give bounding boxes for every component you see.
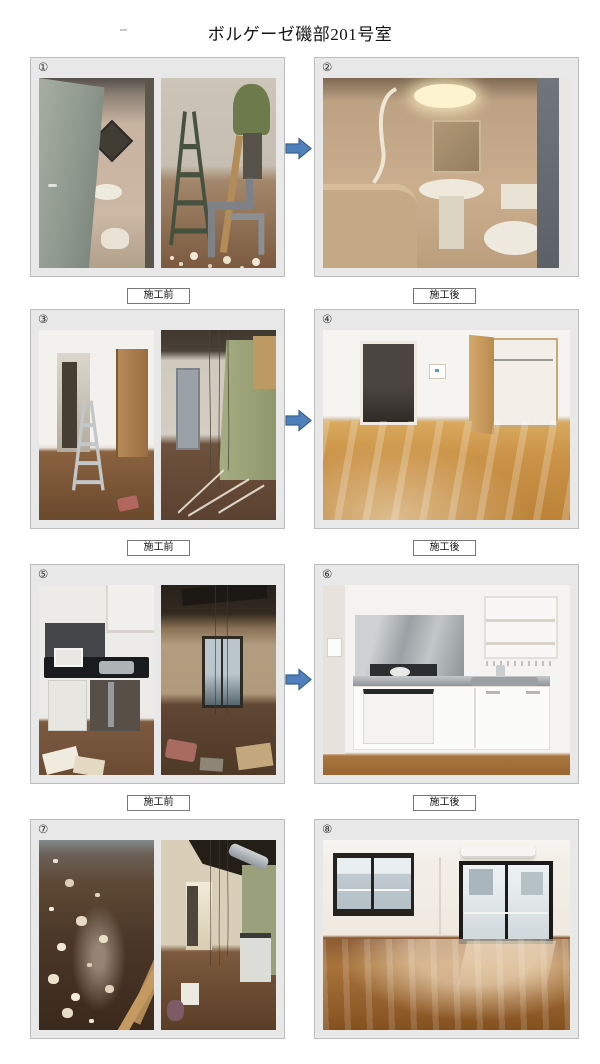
floor-gloss-overlay [323,421,570,520]
sink-shape [92,184,122,199]
after-panel-2: ② [314,57,579,277]
old-kitchen-unit-shape [240,933,271,982]
white-box-shape [181,983,199,1006]
photo-renovated-unit-bathroom [323,78,570,268]
photo-renovated-western-room [323,330,570,520]
tan-debris-shape [235,742,272,769]
panel-number-8: ⑧ [322,824,332,836]
wall-strip-shape [559,78,570,268]
photo-debris-covered-floor [39,840,154,1030]
air-conditioner-shape [461,845,535,858]
open-cabinet-shape [90,680,141,731]
photo-pair [39,330,276,520]
open-door-shape [39,78,105,268]
before-caption-2: 施工前 [127,540,190,556]
balcony-rail-shape [464,912,548,914]
shelf-board-shape [486,642,555,645]
plywood-patch-shape [253,336,276,389]
corridor-door-shape [187,886,197,947]
plaster-debris-specks [53,859,58,863]
photo-bathroom-doorway-before [39,78,154,268]
cabinet-handle-shape [486,691,500,694]
basket-shape [54,648,83,667]
report-page: ボルゲーゼ磯部201号室 ① [0,0,600,1064]
bathtub-shape [323,184,417,268]
floor-reflection-shape [455,941,556,998]
photo-wall-demolition [161,330,276,520]
stainless-sink-shape [99,661,135,674]
photo-single [323,78,570,268]
building-silhouette-shape [469,869,494,896]
toilet-shape [101,228,129,249]
debris-bag-shape [167,1000,184,1021]
photo-pair [39,78,276,268]
mini-fridge-shape [363,689,435,744]
before-panel-3: ③ [30,309,285,529]
debris-shape [72,756,104,775]
balcony-door-mullion-shape [505,865,508,939]
side-wall-shape [323,585,345,754]
right-arrow-icon [285,137,312,160]
door-frame-shape [537,78,559,268]
basin-pedestal-shape [439,196,464,249]
mirror-shape [432,120,481,173]
burner-shape [390,667,410,677]
photo-single [323,840,570,1030]
closet-interior-shape [486,338,558,427]
mini-fridge-shape [48,680,87,731]
right-arrow-icon [285,409,312,432]
before-panel-5: ⑤ [30,564,285,784]
panel-number-7: ⑦ [38,824,48,836]
debris-specks [170,256,174,260]
panel-number-4: ④ [322,314,332,326]
panel-number-3: ③ [38,314,48,326]
after-panel-4: ④ [314,309,579,529]
photo-single [323,585,570,775]
door-frame-shape [145,78,154,268]
after-caption-2: 施工後 [413,540,476,556]
drain-pipe-shape [108,682,114,728]
hanging-wires-shape [205,585,240,714]
photo-plumbing-demolition [161,78,276,268]
chalk-lines-shape [168,455,269,516]
after-panel-8: ⑧ [314,819,579,1039]
cabinet-handle-shape [526,691,540,694]
closet-door-shape [116,349,148,457]
worker-jacket-shape [233,84,270,135]
ceiling-light-shape [414,84,476,109]
photo-gutted-room [161,585,276,775]
photo-pair [39,585,276,775]
after-caption-3: 施工後 [413,795,476,811]
folding-door-shape [469,334,494,433]
stray-mark [120,29,127,31]
page-title: ボルゲーゼ磯部201号室 [0,20,600,45]
right-arrow-icon [285,668,312,691]
photo-single [323,330,570,520]
photo-corridor-demolition [161,840,276,1030]
pink-debris-shape [164,738,197,762]
shelf-board-shape [486,619,555,622]
stepladder-shape [67,398,111,493]
photo-hallway-with-stepladder [39,330,154,520]
closet-rod-shape [493,359,552,361]
red-cloth-shape [117,495,139,512]
pipes-shape [202,165,273,260]
hanging-wires-shape [202,840,237,965]
shower-hose-shape [348,86,412,189]
after-panel-6: ⑥ [314,564,579,784]
toilet-tank-shape [501,184,541,209]
panel-number-5: ⑤ [38,569,48,581]
entrance-hallway-shape [360,341,417,425]
cabinet-seam-shape [474,688,476,749]
before-panel-1: ① [30,57,285,277]
before-panel-7: ⑦ [30,819,285,1039]
photo-renovated-compact-kitchen [323,585,570,775]
panel-number-2: ② [322,62,332,74]
photo-renovated-living-room [323,840,570,1030]
panel-number-6: ⑥ [322,569,332,581]
after-caption-1: 施工後 [413,288,476,304]
building-silhouette-shape [521,872,543,895]
intercom-shape [327,638,342,657]
before-caption-1: 施工前 [127,288,190,304]
photo-old-kitchen-unit [39,585,154,775]
switch-indicator-shape [435,369,439,372]
window-mullion-shape [371,858,374,909]
panel-number-1: ① [38,62,48,74]
wall-shelf-shape [106,585,154,633]
before-caption-3: 施工前 [127,795,190,811]
gray-debris-shape [200,757,224,772]
wall-corner-shape [439,857,441,935]
open-shelves-shape [484,596,558,659]
faucet-shape [496,665,505,678]
door-handle-shape [48,184,57,187]
sink-shape [471,677,538,686]
photo-pair [39,840,276,1030]
